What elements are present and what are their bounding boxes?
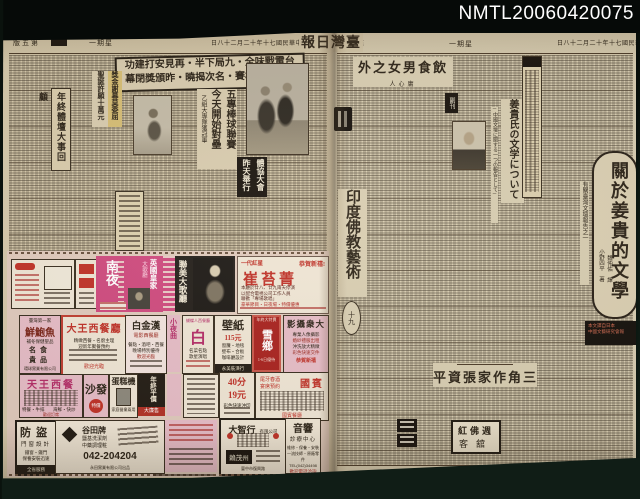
diamond-logo [62,427,78,443]
tianwang-foot: 歡迎訂席 [20,412,82,418]
feature-note-box: 本文譯自日本 中國文藝研究會報 [585,321,636,345]
security-foot: 全省服務 [17,465,55,474]
red-square-1 [79,264,94,274]
essay-author: 人心庸 [353,79,453,88]
baijinhan-name: 白金漢 [126,318,166,332]
club-white-rows [118,261,124,305]
bai-ad: 蝴蝶人西餐廳 白 名菜名點 歌星演唱 [182,315,214,374]
wallpaper-name: 壁紙 [215,317,251,333]
gutian-signature [117,426,158,447]
printshop-num1: 40分 [220,375,254,388]
weekday-label-left: 一期星 [89,38,113,48]
scanned-newspaper-view: 版五第 一期星 日八十二月二十年十七國民華中 功建打安見再・半下局九・全味戰電台… [0,0,640,499]
zhang-headline-block: 平資張家作角三 [433,363,537,387]
bai-rows [186,360,210,370]
wallpaper-price: 115元 [215,333,251,343]
ad-map-box [44,266,72,290]
security-line2: 保養安裝迅速 [17,456,55,462]
sofa-name: 沙發 [84,381,108,397]
discount-name: 年終平價 [147,376,157,402]
baijinhan-sub: 電影西餐廳 [126,332,166,339]
dazhixing-foot: 臺中市復興路 [221,466,285,472]
logo-dot-1 [227,433,233,439]
tianwang-ad: 天王西餐 特餐・牛排 海鮮・快炒 歡迎訂席 [19,374,83,418]
hotel-boxed-ad: 紅佛週 客舘 [451,420,501,454]
tianwang-menu [24,390,78,406]
audio-line2: 一流技師・原廠零件 [286,451,320,463]
mag-sliver-rows [163,256,175,312]
logo-dot-2 [273,433,279,439]
filler-rows-dark [169,448,213,468]
nightclub-ad: 南夜 英國皇家 大歌廳 [96,256,163,312]
feature-title-box: 關於姜貴的文學 小野四平 著 魏仲佑 譯 [592,151,636,319]
sofa-chip: 特價 [89,399,103,413]
notice-column-box [522,56,542,198]
xiaoyequ-title: 小夜曲 [169,318,179,368]
printshop-rows [224,407,250,415]
cui-bottom-band [240,307,326,312]
red-square-2 [79,278,94,288]
dazhixing-body [237,433,269,447]
dazhixing-rows [256,450,280,464]
dawang-foot: 歡迎光臨 [63,363,125,370]
dawang-name: 大王西餐廳 [63,320,125,335]
hotel-line1: 紅佛週 [453,424,499,437]
ad-red-rows [15,274,39,302]
bonus-headline: 獎金謝幕莫委屈 聖誕許願十萬元 [92,71,122,127]
xue-name: 雪鄉 [259,325,275,355]
feature-author-2: 魏仲佑 譯 [605,255,613,311]
association-col1: 體協大會 [253,159,267,197]
bonus-headline-col1: 獎金謝幕莫委屈 [108,71,122,127]
xiaoyequ-ad: 小夜曲 [167,315,180,372]
ads-top-border [9,252,327,254]
royal-photo [128,288,150,309]
xue-chip: 年終大特賣 [252,317,281,323]
laimaozhou-label: 賴茂州 [229,452,249,462]
center-fold-shadow [319,33,347,479]
supplement-chip: 副刊 [445,93,458,113]
zhang-rule [457,364,513,365]
cui-body: 本廳於廿八、廿九兩天停演 以配合電視公司工作人員 聯歡「專場歌唱」 豪華節目・日… [241,285,325,307]
royal-sub: 大歌廳 [140,261,148,287]
hotel-line2: 客舘 [453,437,499,450]
audio-name: 音響 [286,420,320,435]
date-line-right: 日八十二月二十年十七國民華中 [557,38,636,47]
discount-ad: 年終平價 大廉售 [138,374,165,416]
baseball-photo [246,63,309,155]
gutian-phone: 042-204204 [56,451,164,462]
portrait-photo [452,121,486,170]
classifieds-column [115,191,144,251]
supplement-chip-label: 副刊 [447,97,456,109]
association-col2: 昨天舉行 [239,159,253,197]
association-headline-box: 體協大會 昨天舉行 [237,157,267,197]
guobin-menu [260,391,324,411]
security-ad: 防盜 門窗設計 鐵窗・鐵門 保養安裝迅速 全省服務 [15,420,57,476]
filler-rows-red [169,424,213,444]
cakemachine-name: 蛋糕機 [110,376,137,387]
masthead-rule-right [337,53,633,54]
abalone-b: 貴品 [20,355,60,365]
pink-filler-ad [165,420,217,472]
wallpaper-ad: 壁紙 115元 窗簾・地毯 壁布・合板 咖啡廳設計 永美裝潢行 [214,315,252,374]
feature-side-note: 有關臺灣文壇報告之一 [580,181,589,285]
advertising-zone: 南夜 英國皇家 大歌廳 聯美大歌廳 一代紅星 恭賀新禧! [7,251,329,477]
chip-rows-1 [400,421,414,430]
xue-ad: 年終大特賣 雪鄉 1-6日優待 [252,315,281,372]
bai-name: 白 [183,324,213,348]
league-headline-col1: 五專棒球聯賽 [222,89,237,169]
league-headline: 五專棒球聯賽 今天開始對壘 乙組大專隊獲冠軍 [197,89,237,169]
abalone-ad: 臺灣第一家 鮮鮑魚 補冬保健聖品 名食 貴品 環球實業有限公司 [19,315,61,374]
cui-taiqing-ad: 一代紅星 恭賀新禧! 崔苔菁 本廳於廿八、廿九兩天停演 以配合電視公司工作人員 … [237,256,329,314]
dawang-ad: 大王西餐廳 精緻西餐・名廚主理 迎新年聚餐預約 歡迎光臨 [61,315,127,376]
pink-text-ad [167,374,181,416]
certificate-rows [187,378,215,414]
printshop-ad: 40分 19元 彩色快速沖印 [219,372,255,419]
security-name: 防盜 [17,424,55,440]
essay-headline-block: 外之女男食飲 人心庸 [353,57,453,87]
gutian-foot: 永田實業有限公司出品 [56,465,164,471]
buddhist-part-number: 十九 [347,311,357,325]
xue-line: 1-6日優待 [252,357,281,363]
chip-rows-2 [400,436,414,445]
essay-title: 外之女男食飲 [353,57,453,76]
abalone-a: 名食 [20,345,60,355]
ad-rows [44,292,70,304]
newspaper-page-right: 版八第 一期星 日八十二月二十年十七國民華中 外之女男食飲 人心庸 副刊 姜貴氏… [333,33,636,479]
zhang-title: 平資張家作角三 [433,367,537,386]
abalone-foot: 環球實業有限公司 [20,366,60,372]
feature-footnote-2: 中國文藝研究會報 [588,329,636,335]
black-chip-1 [397,419,417,432]
certificate-ad [183,374,219,418]
baijinhan-rows [130,360,162,370]
weekday-label-right: 一期星 [449,39,473,49]
audio-line3: TEL(042)34498 [286,463,320,468]
dawang-rows [69,349,117,361]
sidebar-headline-box: 年終體壇大事回顧 [51,88,71,171]
ad-rows [79,292,94,304]
notice-column-header [523,57,541,67]
gutian-line2: 中藥調理粧 [82,442,107,449]
sofa-ad: 沙發 特價 [83,374,109,418]
jp-article-title: 姜貴氏の文学について [501,99,524,203]
singer-photo [193,258,233,310]
newspaper-sheet: 版五第 一期星 日八十二月二十年十七國民華中 功建打安見再・半下局九・全味戰電台… [3,33,636,479]
notice-column-rows [525,70,539,192]
security-sub: 門窗設計 [17,440,55,448]
newspaper-page-left: 版五第 一期星 日八十二月二十年十七國民華中 功建打安見再・半下局九・全味戰電台… [3,33,331,479]
archive-id-label: NMTL20060420075 [459,3,634,25]
audio-ad: 音響 診療中心 維修・保養・安裝 一流技師・原廠零件 TEL(042)34498… [285,418,321,474]
cakemachine-line: 家庭營業兩用 [110,407,137,413]
bonus-headline-col2: 聖誕許願十萬元 [94,71,108,127]
gutian-line1: 鹽基洗潔劑 [82,435,107,442]
tianwang-name: 天王西餐 [20,376,82,391]
lianmei-ad: 聯美大歌廳 [163,256,235,312]
opening-ad-small [75,259,98,309]
lianmei-title: 聯美大歌廳 [177,260,189,310]
news-photo-small [133,95,172,155]
discount-band: 大廉售 [138,407,165,416]
printshop-num2: 19元 [220,388,254,401]
wallpaper-line3: 咖啡廳設計 [215,355,251,361]
cakemachine-ad: 蛋糕機 家庭營業兩用 [109,374,138,418]
dazhixing-ad: 大智行 有限公司 賴茂州 臺中市復興路 [219,418,287,476]
hotel-ad-small [11,259,75,309]
gutian-ad: 谷田牌 鹽基洗潔劑 中藥調理粧 042-204204 永田實業有限公司出品 [55,420,165,474]
guobin-ad: 國賓 尾牙春酒 宴席預約 國賓餐廳 [255,372,329,421]
red-pill-badge [15,263,35,270]
guobin-line2: 宴席預約 [260,383,280,390]
audio-sub: 診療中心 [286,435,320,443]
black-chip-2 [397,434,417,447]
baijinhan-ad: 白金漢 電影西餐廳 餐點・酒吧・西餐 晚場特別優待 歡迎光臨 [125,315,167,374]
classifieds-rows [119,195,140,247]
guobin-line1: 尾牙春酒 [260,376,280,383]
feature-author-1: 小野四平 著 [597,249,605,311]
laimaozhou-box: 賴茂州 [226,450,252,464]
date-line-left: 日八十二月二十年十七國民華中 [211,38,302,47]
abalone-name: 鮮鮑魚 [20,324,60,339]
cui-tag: 一代紅星 [241,259,263,267]
club-bottom-rows [100,302,126,310]
machine-figure [116,388,131,406]
jp-article-subtitle: ─中國文壇に關する一つの報告として─ [491,107,498,223]
league-headline-sub: 乙組大專隊獲冠軍 [198,89,207,169]
league-headline-col2: 今天開始對壘 [207,89,222,169]
